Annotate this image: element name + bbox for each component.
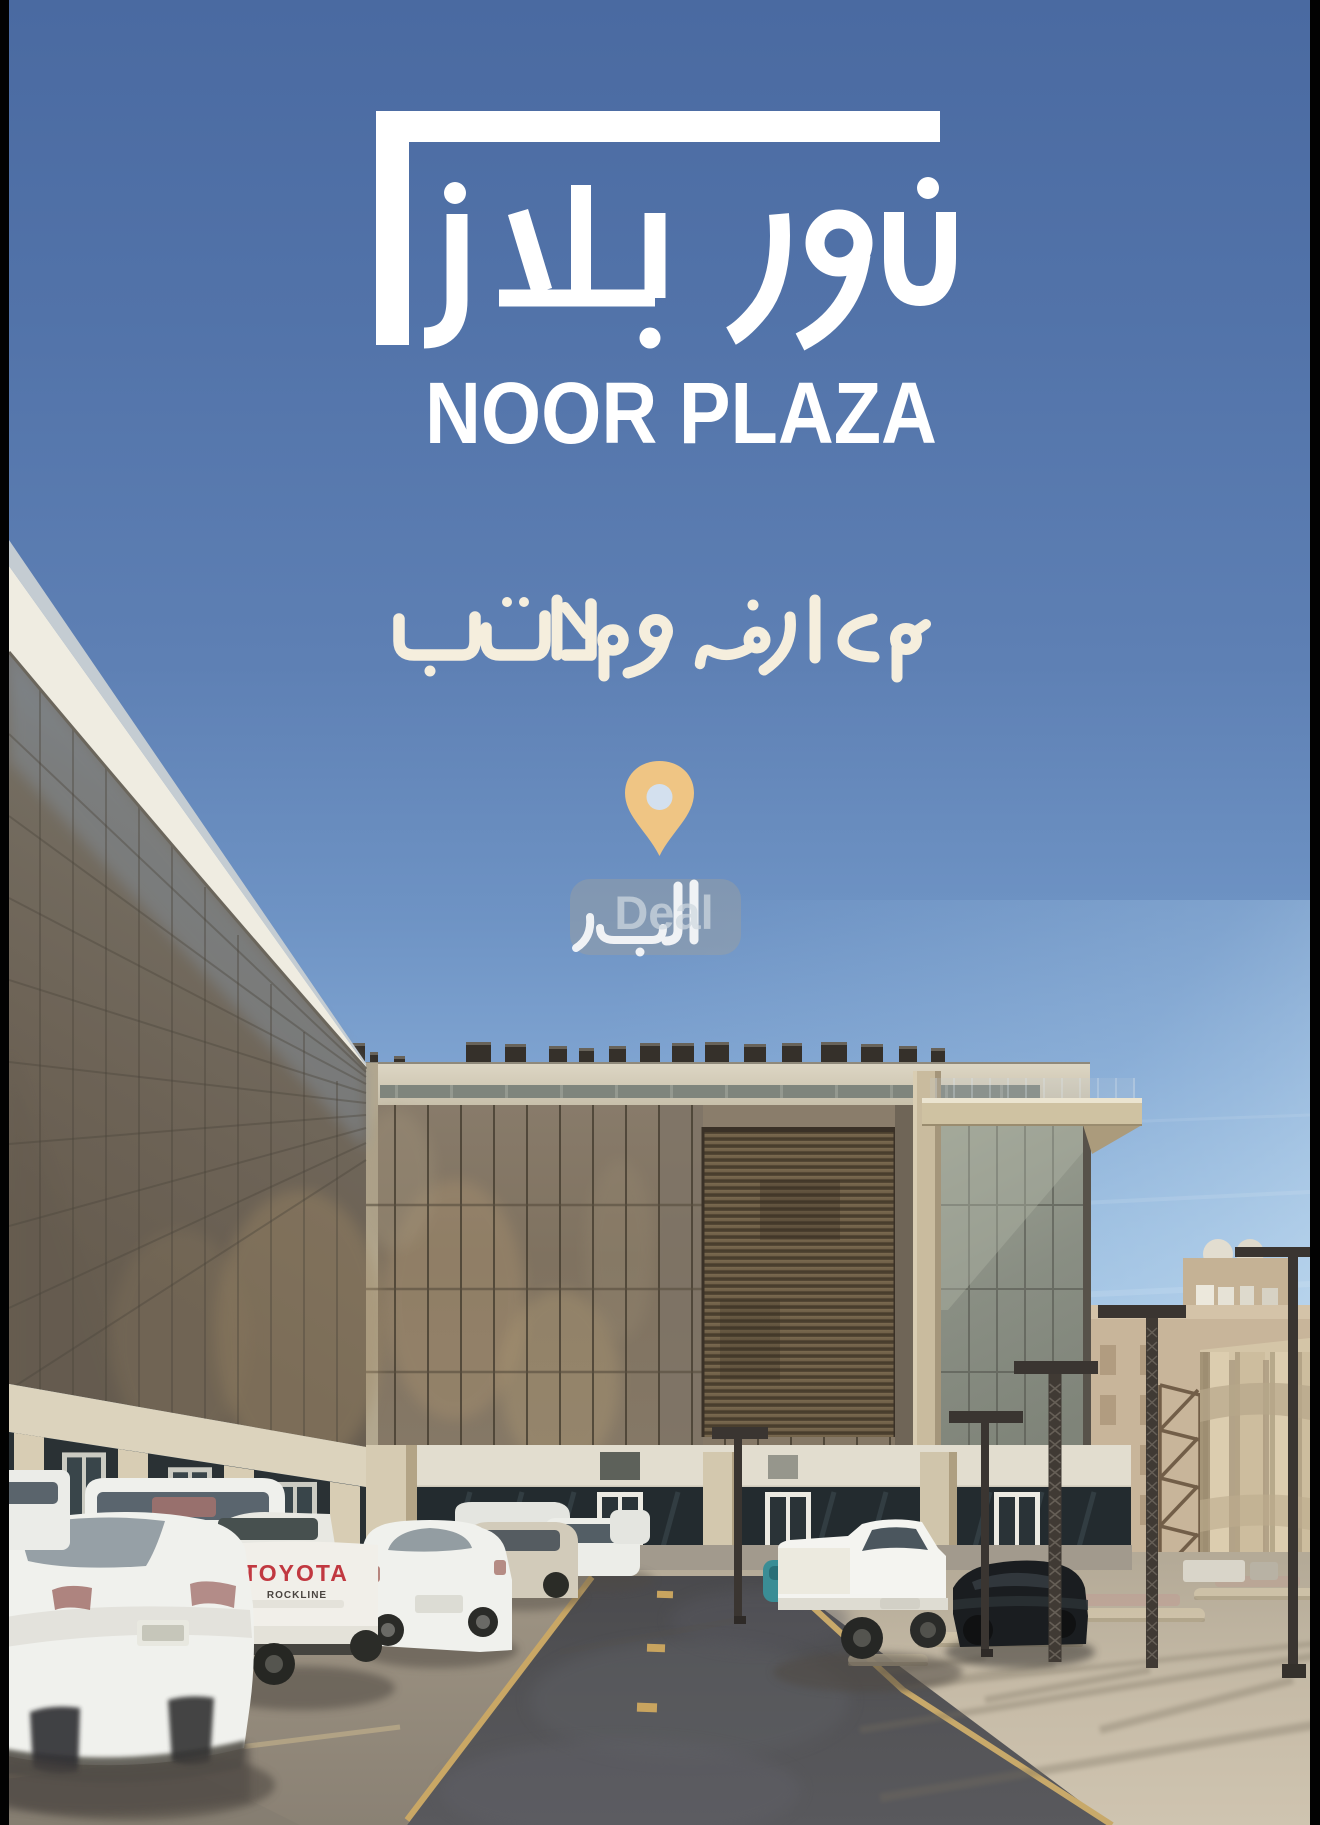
svg-text:Deal: Deal	[614, 886, 713, 939]
svg-text:ROCKLINE: ROCKLINE	[267, 1590, 327, 1601]
svg-text:NOOR PLAZA: NOOR PLAZA	[425, 365, 937, 462]
svg-text:TOYOTA: TOYOTA	[243, 1560, 349, 1586]
